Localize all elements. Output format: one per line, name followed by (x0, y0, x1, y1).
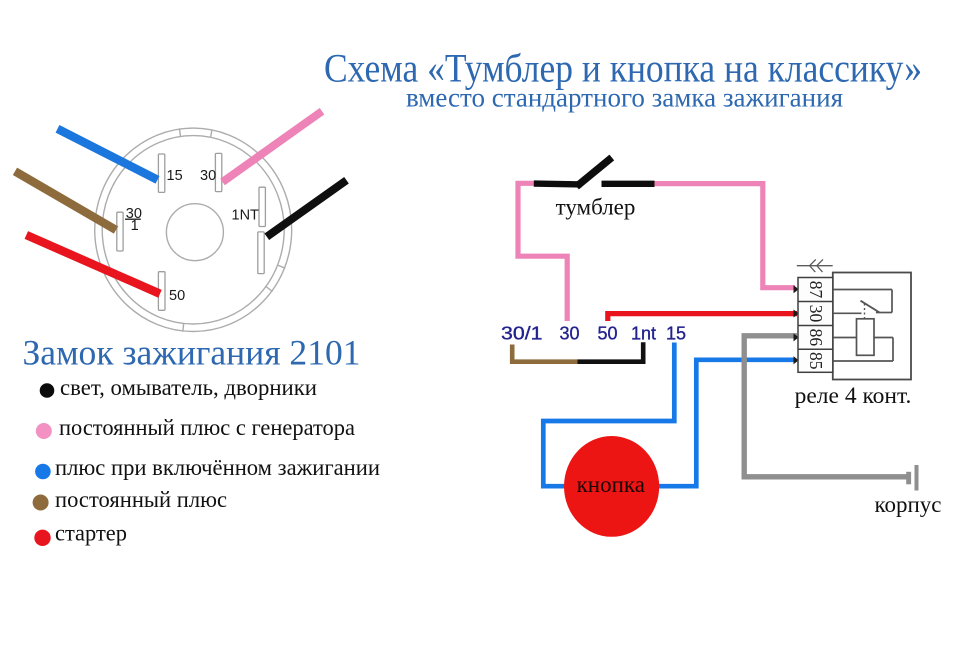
svg-text:87: 87 (806, 281, 826, 299)
svg-text:Замок зажигания 2101: Замок зажигания 2101 (23, 333, 361, 373)
svg-text:15: 15 (167, 168, 183, 184)
svg-text:1nt: 1nt (631, 324, 656, 344)
svg-text:1: 1 (131, 218, 139, 234)
svg-text:плюс при включённом зажигании: плюс при включённом зажигании (55, 455, 380, 480)
svg-text:постоянный плюс с генератора: постоянный плюс с генератора (59, 415, 355, 440)
svg-text:85: 85 (806, 352, 826, 370)
svg-text:1NT: 1NT (232, 208, 260, 224)
svg-text:тумблер: тумблер (556, 195, 636, 220)
svg-text:корпус: корпус (874, 492, 941, 517)
svg-text:30/1: 30/1 (501, 324, 543, 344)
svg-text:реле 4 конт.: реле 4 конт. (795, 383, 912, 409)
svg-text:стартер: стартер (55, 521, 127, 546)
svg-text:15: 15 (666, 324, 686, 344)
svg-text:вместо стандартного замка зажи: вместо стандартного замка зажигания (406, 83, 843, 113)
svg-text:50: 50 (598, 324, 618, 344)
svg-text:50: 50 (169, 288, 185, 304)
svg-text:кнопка: кнопка (577, 472, 645, 497)
svg-text:постоянный плюс: постоянный плюс (55, 487, 227, 512)
svg-text:30: 30 (560, 324, 580, 344)
svg-text:86: 86 (806, 329, 826, 347)
svg-text:30: 30 (806, 305, 826, 323)
svg-text:30: 30 (200, 168, 216, 184)
svg-text:свет, омыватель, дворники: свет, омыватель, дворники (60, 375, 317, 400)
